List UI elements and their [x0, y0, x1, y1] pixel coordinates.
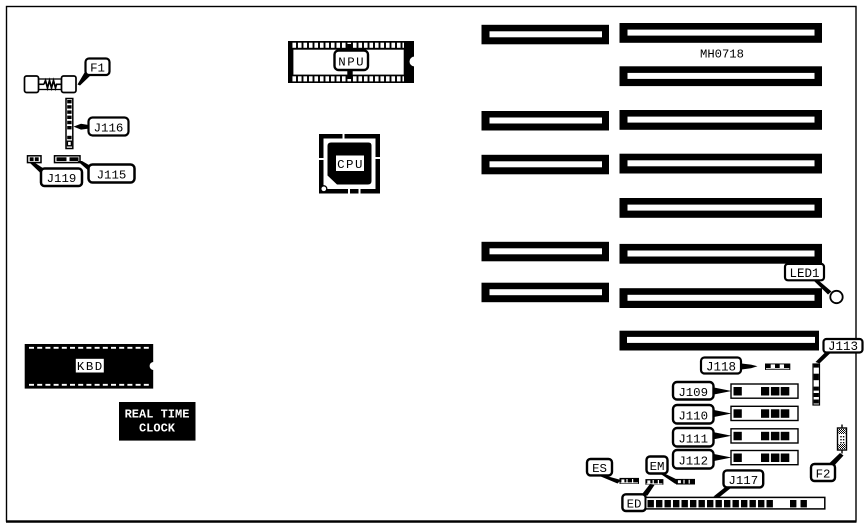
svg-text:J112: J112 [678, 454, 708, 468]
svg-text:EM: EM [650, 460, 665, 474]
svg-text:J111: J111 [678, 432, 708, 446]
svg-text:KBD: KBD [77, 360, 104, 374]
svg-text:REAL TIME: REAL TIME [125, 408, 190, 422]
svg-text:J115: J115 [97, 169, 127, 183]
svg-text:J117: J117 [728, 474, 758, 488]
svg-text:MH0718: MH0718 [700, 48, 744, 62]
svg-text:NPU: NPU [338, 56, 365, 70]
svg-text:ES: ES [592, 462, 607, 476]
svg-text:CPU: CPU [337, 158, 364, 172]
svg-text:J119: J119 [47, 172, 77, 186]
svg-text:LED1: LED1 [789, 267, 819, 281]
svg-text:F2: F2 [816, 468, 831, 482]
svg-text:ED: ED [627, 498, 642, 512]
svg-text:J109: J109 [678, 386, 708, 400]
svg-text:J116: J116 [94, 122, 124, 136]
svg-text:CLOCK: CLOCK [139, 422, 176, 436]
svg-text:J113: J113 [828, 340, 858, 354]
svg-text:F1: F1 [90, 62, 105, 76]
svg-text:J110: J110 [678, 409, 708, 423]
svg-text:J118: J118 [706, 360, 736, 374]
